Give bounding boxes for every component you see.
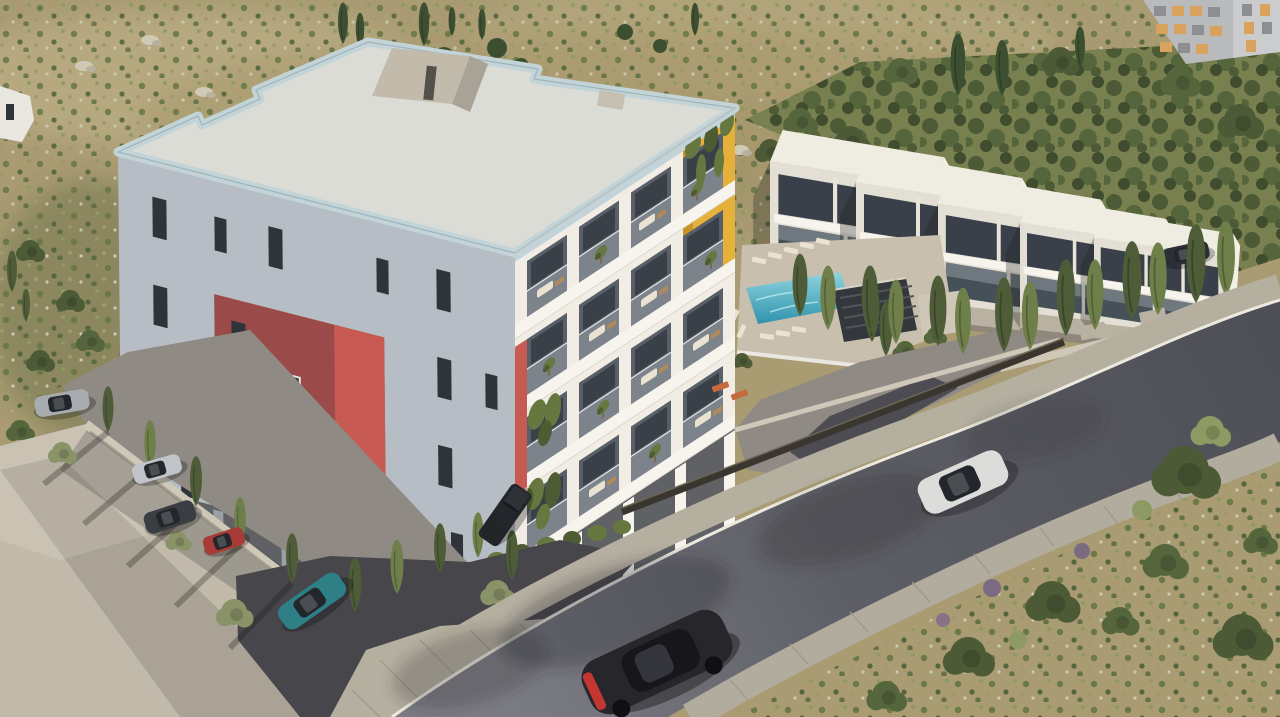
flowering-shrub xyxy=(936,613,950,627)
flowering-shrub xyxy=(983,579,1001,597)
aerial-render xyxy=(0,0,1280,717)
red-accent-pier xyxy=(515,339,527,495)
render-stage xyxy=(0,0,1280,717)
flowering-shrub xyxy=(1074,543,1090,559)
